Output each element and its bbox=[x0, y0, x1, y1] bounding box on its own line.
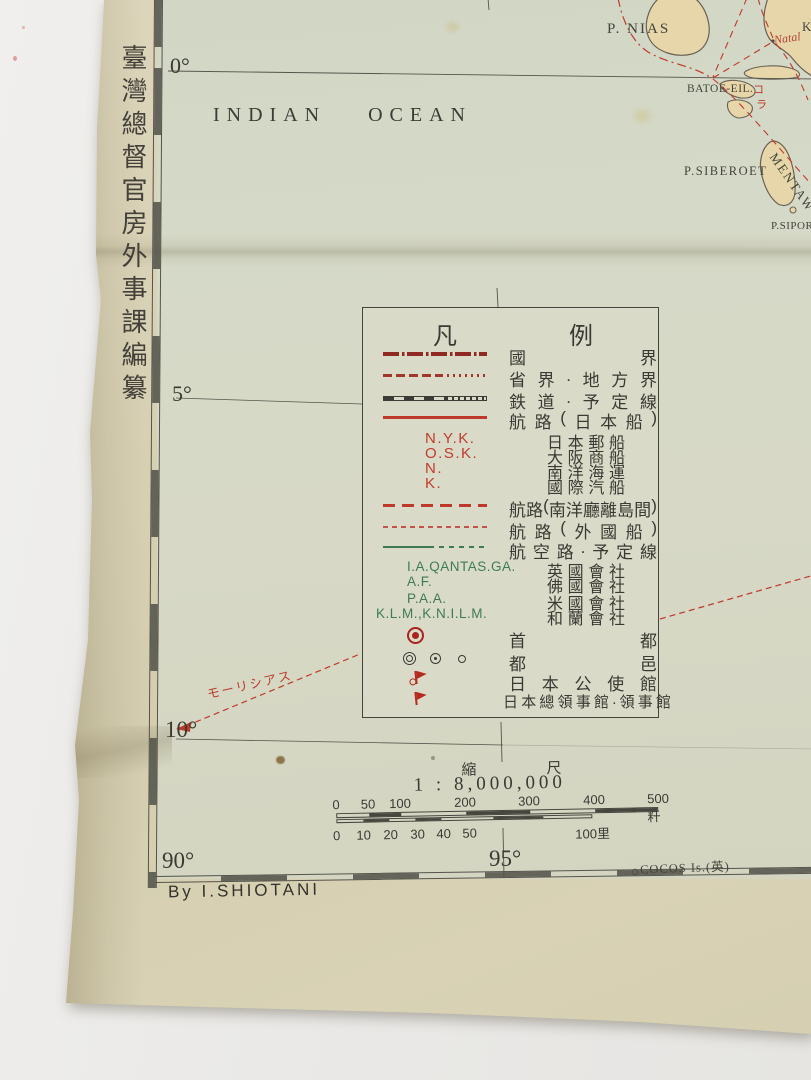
legend-row-route-nanyo: 航路(南洋廳離島間) bbox=[363, 496, 658, 516]
latitude-label-0: 0° bbox=[170, 53, 190, 79]
legend-row-province-boundary: 省界.地方界 bbox=[363, 366, 658, 386]
legend-row-air-route: 航空路.予定線 bbox=[363, 538, 658, 558]
place-label-cut: K bbox=[802, 19, 811, 35]
longitude-label-90: 90° bbox=[162, 848, 194, 874]
ri-tick: 50 bbox=[462, 825, 477, 840]
legend-row-towns: 都邑 bbox=[363, 650, 658, 670]
ri-tick: 100里 bbox=[575, 823, 610, 843]
japanese-route-line-symbol bbox=[383, 416, 487, 419]
ri-tick: 20 bbox=[383, 827, 398, 842]
legend-row-railway: 鉄道.予定線 bbox=[363, 388, 658, 408]
air-route-line-symbol bbox=[383, 546, 487, 548]
town-symbol-medium bbox=[430, 653, 441, 664]
place-label-cocos: COCOS Is.(英) bbox=[640, 855, 730, 877]
route-label-char: ラ bbox=[756, 96, 767, 112]
legend-label: 日本總領事館.領事館 bbox=[503, 691, 671, 712]
ocean-label: INDIAN OCEAN bbox=[213, 104, 472, 127]
scale-bar-segment bbox=[493, 816, 543, 819]
legend-row-legation: 日本公使館 bbox=[363, 670, 658, 690]
scale-bar-segment bbox=[369, 813, 401, 817]
legend-box: 凡 例 國界 省界.地方界 鉄道.予定線 航路(日本船) bbox=[362, 307, 659, 718]
km-tick: 0 bbox=[332, 797, 340, 812]
km-tick: 200 bbox=[454, 795, 476, 810]
legend-label: 首都 bbox=[509, 627, 657, 652]
ri-tick: 30 bbox=[410, 826, 425, 841]
national-boundary-line-symbol bbox=[383, 352, 487, 356]
ri-tick: 0 bbox=[333, 828, 341, 843]
longitude-label-95: 95° bbox=[489, 846, 521, 872]
airline-abbr: I.A.QANTAS.GA. bbox=[407, 559, 516, 574]
scale-bar-segment bbox=[466, 810, 530, 814]
photo-of-map: INDIAN OCEAN 0° 5° 10° 90° 95° P. NIAS N… bbox=[0, 0, 811, 1080]
margin-vertical-title: 臺灣總督官房外事課編纂 bbox=[118, 44, 152, 414]
airline-abbr: A.F. bbox=[407, 574, 432, 589]
scale-bar-segment bbox=[363, 819, 389, 821]
latitude-label-5: 5° bbox=[172, 381, 192, 407]
scale-ratio: 1 : 8,000,000 bbox=[413, 772, 566, 797]
legend-label: 和蘭會社 bbox=[547, 605, 625, 629]
foreign-route-line-symbol bbox=[383, 526, 487, 528]
legend-row-route-foreign: 航路(外國船) bbox=[363, 518, 658, 538]
railway-line-symbol bbox=[383, 396, 487, 401]
km-tick: 100 bbox=[389, 796, 411, 811]
legend-row-route-japanese: 航路(日本船) bbox=[363, 408, 658, 428]
paper-shadow: INDIAN OCEAN 0° 5° 10° 90° 95° P. NIAS N… bbox=[0, 0, 811, 1080]
legation-flag-icon bbox=[414, 671, 417, 684]
map-sheet: INDIAN OCEAN 0° 5° 10° 90° 95° P. NIAS N… bbox=[0, 0, 811, 1080]
ri-tick: 40 bbox=[436, 826, 451, 841]
latitude-label-10: 10° bbox=[165, 717, 197, 743]
km-tick: 50 bbox=[361, 796, 376, 811]
km-tick: 300 bbox=[518, 793, 540, 808]
route-label-char: コ bbox=[753, 81, 764, 97]
province-boundary-line-symbol bbox=[383, 374, 487, 377]
place-label-nias: P. NIAS bbox=[607, 21, 670, 38]
ocean-word-1: INDIAN bbox=[213, 104, 326, 127]
km-tick: 400 bbox=[583, 792, 605, 807]
legend-row-consulate: 日本總領事館.領事館 bbox=[363, 691, 658, 711]
cartographer-byline: By I.SHIOTANI bbox=[168, 880, 320, 903]
airline-abbr: P.A.A. bbox=[407, 591, 447, 606]
legend-label: 國際汽船 bbox=[547, 474, 625, 498]
place-label-siberoet: P.SIBEROET bbox=[684, 164, 767, 179]
scale-bar-segment bbox=[595, 808, 657, 812]
place-label-batoe: BATOE-EIL. bbox=[687, 83, 753, 95]
place-label-sipora: P.SIPOR bbox=[771, 220, 811, 232]
capital-symbol bbox=[407, 627, 424, 644]
consulate-flag-icon bbox=[414, 692, 417, 705]
town-symbol-small bbox=[458, 655, 466, 663]
airline-abbr: K.L.M.,K.N.I.L.M. bbox=[376, 606, 487, 621]
ocean-word-2: OCEAN bbox=[368, 104, 472, 127]
legend-row-capital: 首都 bbox=[363, 627, 658, 647]
legend-row-k: K. 國際汽船 bbox=[363, 474, 658, 494]
nanyo-route-line-symbol bbox=[383, 504, 487, 507]
scale-bar-segment bbox=[415, 818, 441, 820]
legend-row-national-boundary: 國界 bbox=[363, 344, 658, 364]
company-abbr: K. bbox=[425, 475, 442, 492]
ri-tick: 10 bbox=[356, 828, 371, 843]
town-symbol-large bbox=[403, 652, 416, 665]
scale-block: 縮 尺 1 : 8,000,000 0 50 100 200 300 400 5… bbox=[329, 755, 676, 846]
legend-row-klm: K.L.M.,K.N.I.L.M. 和蘭會社 bbox=[363, 605, 658, 625]
